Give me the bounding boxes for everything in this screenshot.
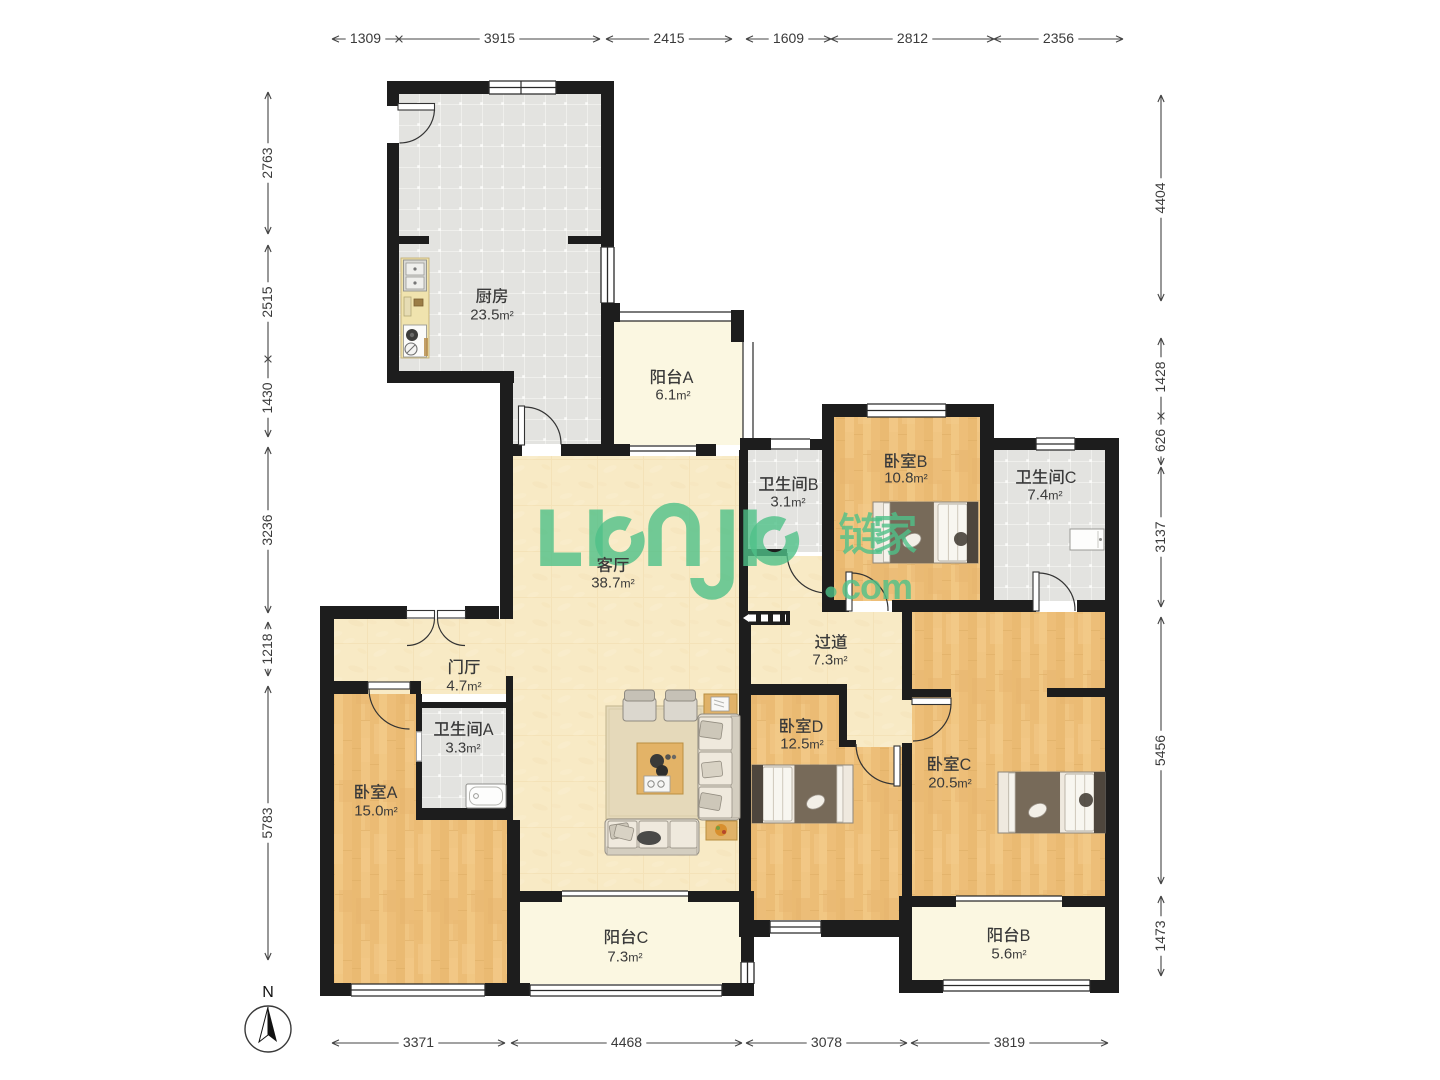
svg-text:20.5m²: 20.5m² (928, 774, 972, 791)
svg-text:38.7m²: 38.7m² (591, 574, 635, 591)
svg-text:B: B (808, 476, 819, 494)
svg-text:2812: 2812 (897, 30, 928, 46)
svg-text:2515: 2515 (259, 286, 275, 317)
svg-text:C: C (960, 756, 972, 774)
svg-text:3.1m²: 3.1m² (770, 493, 805, 510)
svg-text:com: com (841, 566, 912, 607)
svg-text:15.0m²: 15.0m² (354, 802, 398, 819)
svg-text:3137: 3137 (1152, 521, 1168, 552)
svg-text:3371: 3371 (403, 1034, 434, 1050)
svg-text:626: 626 (1152, 429, 1168, 453)
svg-text:C: C (637, 929, 649, 947)
svg-text:1309: 1309 (350, 30, 381, 46)
svg-text:6.1m²: 6.1m² (655, 386, 690, 403)
svg-text:B: B (917, 453, 928, 471)
svg-text:A: A (387, 784, 398, 802)
svg-text:7.4m²: 7.4m² (1027, 486, 1062, 503)
svg-text:1428: 1428 (1152, 361, 1168, 392)
svg-text:4404: 4404 (1152, 182, 1168, 213)
svg-text:A: A (683, 369, 694, 387)
svg-text:2356: 2356 (1043, 30, 1074, 46)
svg-text:4.7m²: 4.7m² (446, 677, 481, 694)
svg-text:B: B (1020, 927, 1031, 945)
svg-text:D: D (812, 718, 824, 736)
svg-text:23.5m²: 23.5m² (470, 306, 514, 323)
svg-text:10.8m²: 10.8m² (884, 469, 928, 486)
svg-text:N: N (262, 984, 274, 1001)
svg-text:5783: 5783 (259, 807, 275, 838)
svg-text:2415: 2415 (653, 30, 684, 46)
svg-text:1430: 1430 (259, 382, 275, 413)
svg-text:2763: 2763 (259, 147, 275, 178)
svg-text:7.3m²: 7.3m² (812, 651, 847, 668)
svg-text:5456: 5456 (1152, 735, 1168, 766)
svg-text:1609: 1609 (773, 30, 804, 46)
svg-text:7.3m²: 7.3m² (607, 948, 642, 965)
svg-text:1473: 1473 (1152, 920, 1168, 951)
svg-text:3819: 3819 (994, 1034, 1025, 1050)
svg-text:12.5m²: 12.5m² (780, 735, 824, 752)
svg-text:3236: 3236 (259, 514, 275, 545)
svg-text:3.3m²: 3.3m² (445, 739, 480, 756)
svg-text:3078: 3078 (811, 1034, 842, 1050)
svg-text:5.6m²: 5.6m² (991, 945, 1026, 962)
svg-text:A: A (483, 721, 494, 739)
svg-text:4468: 4468 (611, 1034, 642, 1050)
svg-text:3915: 3915 (484, 30, 515, 46)
svg-text:1218: 1218 (259, 633, 275, 664)
svg-text:C: C (1065, 469, 1077, 487)
